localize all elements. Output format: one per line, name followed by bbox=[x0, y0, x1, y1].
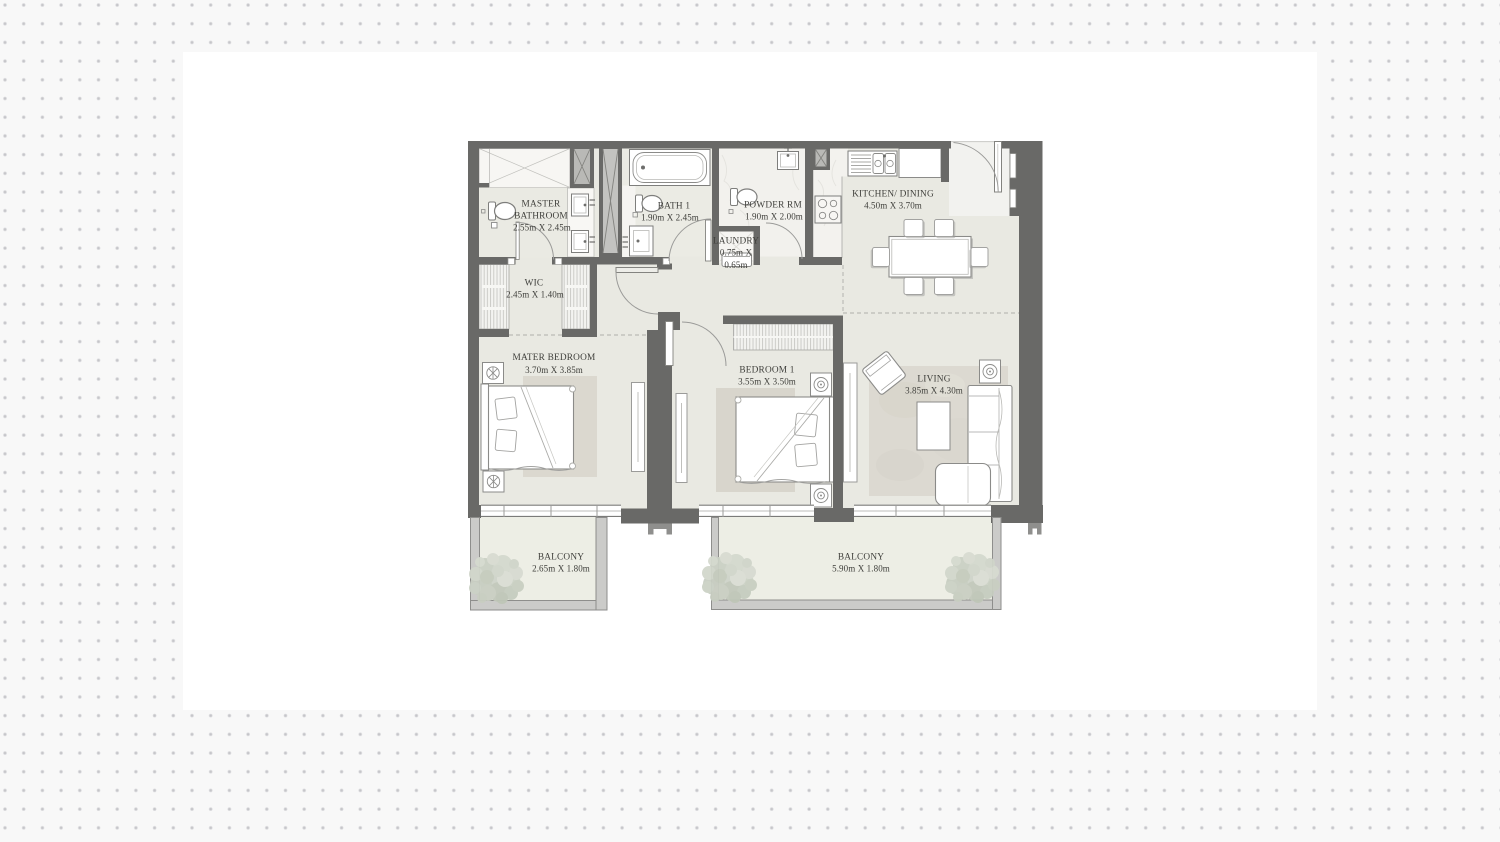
svg-text:KITCHEN/ DINING: KITCHEN/ DINING bbox=[852, 190, 934, 200]
svg-text:1.90m X 2.45m: 1.90m X 2.45m bbox=[641, 213, 699, 223]
svg-text:3.85m X 4.30m: 3.85m X 4.30m bbox=[905, 386, 963, 396]
svg-text:1.90m X 2.00m: 1.90m X 2.00m bbox=[745, 212, 803, 222]
svg-text:BALCONY: BALCONY bbox=[538, 553, 584, 563]
svg-text:BATHROOM: BATHROOM bbox=[514, 212, 568, 222]
svg-text:4.50m X 3.70m: 4.50m X 3.70m bbox=[864, 201, 922, 211]
svg-text:POWDER RM: POWDER RM bbox=[744, 201, 802, 211]
svg-text:0.65m: 0.65m bbox=[724, 260, 747, 270]
svg-text:WIC: WIC bbox=[525, 279, 544, 289]
svg-text:2.55m X 2.45m: 2.55m X 2.45m bbox=[513, 223, 571, 233]
svg-text:2.45m X 1.40m: 2.45m X 1.40m bbox=[506, 290, 564, 300]
svg-text:5.90m X 1.80m: 5.90m X 1.80m bbox=[832, 564, 890, 574]
svg-text:BALCONY: BALCONY bbox=[838, 553, 884, 563]
svg-text:2.65m X 1.80m: 2.65m X 1.80m bbox=[532, 564, 590, 574]
svg-text:BEDROOM 1: BEDROOM 1 bbox=[739, 366, 794, 376]
svg-text:LAUNDRY: LAUNDRY bbox=[713, 237, 759, 247]
svg-text:0.75m X: 0.75m X bbox=[720, 248, 753, 258]
svg-text:LIVING: LIVING bbox=[917, 375, 950, 385]
svg-text:MATER BEDROOM: MATER BEDROOM bbox=[513, 353, 596, 363]
svg-text:BATH 1: BATH 1 bbox=[658, 202, 691, 212]
svg-text:3.70m X 3.85m: 3.70m X 3.85m bbox=[525, 365, 583, 375]
svg-text:MASTER: MASTER bbox=[522, 200, 562, 210]
svg-text:3.55m X 3.50m: 3.55m X 3.50m bbox=[738, 377, 796, 387]
